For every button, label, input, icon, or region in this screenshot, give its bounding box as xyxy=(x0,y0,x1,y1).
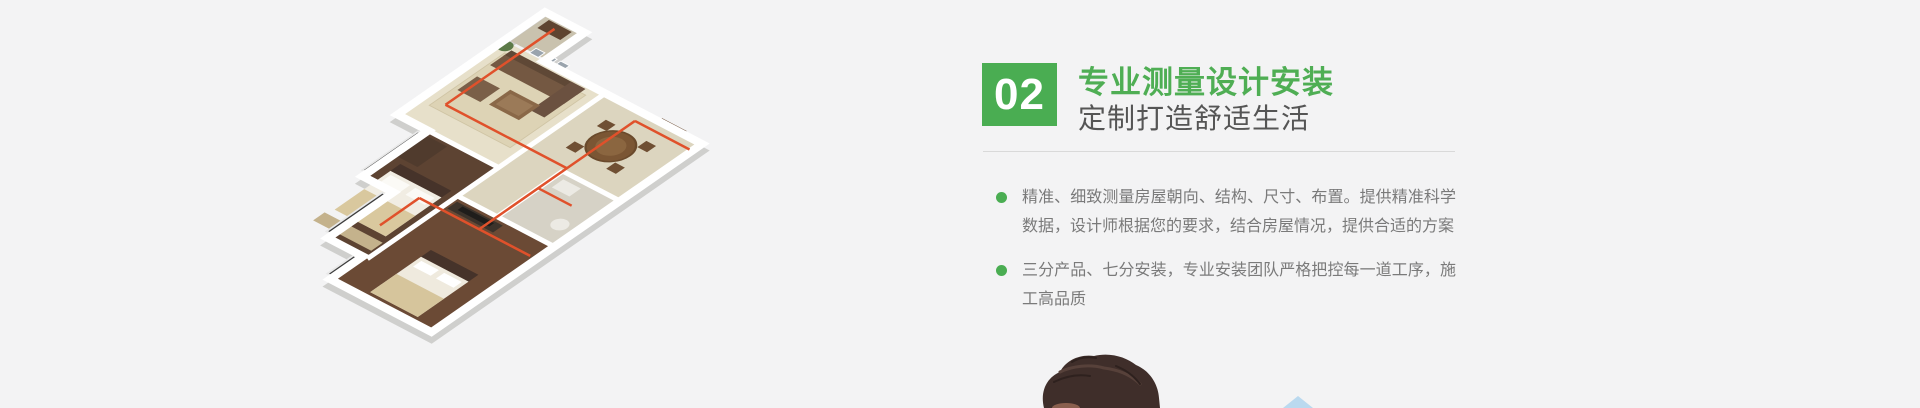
step-number: 02 xyxy=(994,70,1045,120)
list-item: 三分产品、七分安装，专业安装团队严格把控每一道工序，施工高品质 xyxy=(983,256,1457,314)
bullet-dot-icon xyxy=(996,265,1007,276)
divider-line xyxy=(983,151,1455,152)
roof-triangle-icon xyxy=(1283,396,1313,408)
bullet-text: 三分产品、七分安装，专业安装团队严格把控每一道工序，施工高品质 xyxy=(1022,256,1456,314)
floorplan-illustration-icon xyxy=(300,0,760,345)
list-item: 精准、细致测量房屋朝向、结构、尺寸、布置。提供精准科学数据，设计师根据您的要求，… xyxy=(983,183,1457,241)
feature-list: 精准、细致测量房屋朝向、结构、尺寸、布置。提供精准科学数据，设计师根据您的要求，… xyxy=(983,183,1457,329)
step-number-badge: 02 xyxy=(982,63,1057,126)
bullet-dot-icon xyxy=(996,192,1007,203)
section-subtitle: 定制打造舒适生活 xyxy=(1078,97,1310,137)
person-photo-teaser xyxy=(1020,352,1180,408)
section-02-installation: 02 专业测量设计安装 定制打造舒适生活 精准、细致测量房屋朝向、结构、尺寸、布… xyxy=(0,0,1920,408)
section-title: 专业测量设计安装 xyxy=(1078,57,1334,102)
bullet-text: 精准、细致测量房屋朝向、结构、尺寸、布置。提供精准科学数据，设计师根据您的要求，… xyxy=(1022,183,1456,241)
